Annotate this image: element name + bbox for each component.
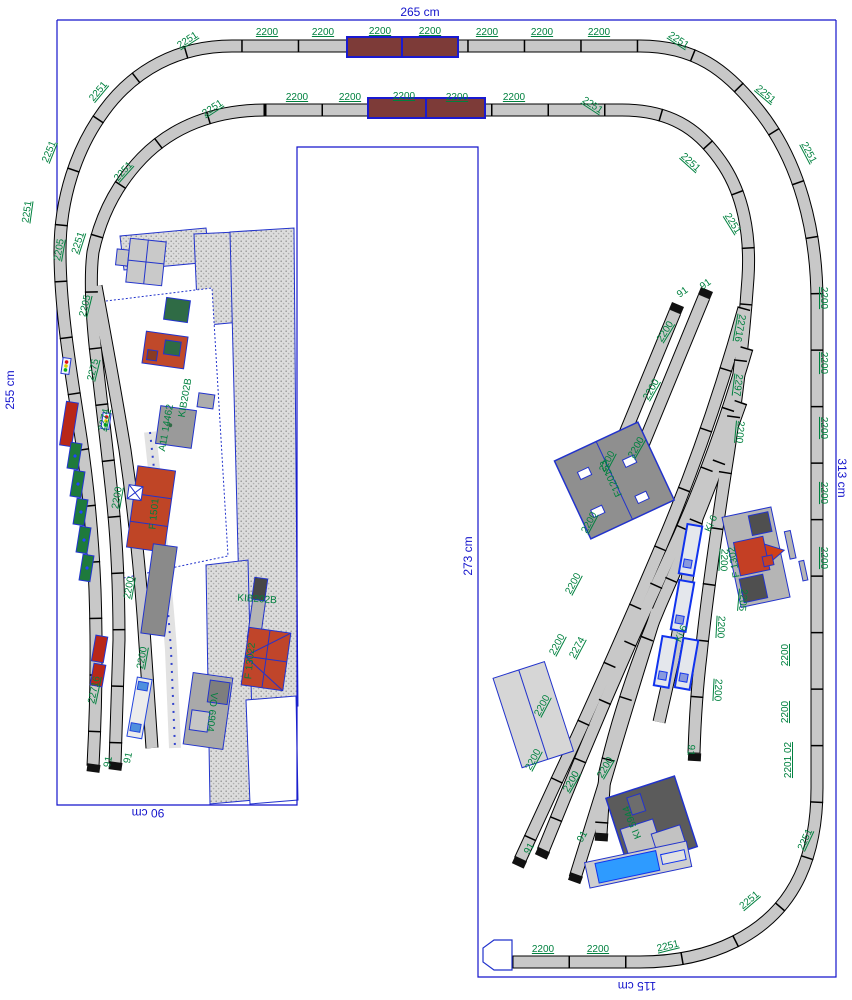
track-plan-canvas: 265 cm 255 cm 313 cm 90 cm 273 cm 115 cm… (0, 0, 852, 1000)
dimension-middle: 273 cm (462, 536, 474, 575)
dimension-top: 265 cm (400, 6, 439, 18)
building-f1302-complex (722, 503, 811, 608)
building-green-roof (164, 297, 191, 322)
building-f120153 (554, 422, 674, 539)
dimension-left: 255 cm (4, 370, 16, 409)
building-f13022 (241, 627, 291, 690)
track-plan-drawing (0, 0, 852, 1000)
dimension-bottom-left: 90 cm (132, 807, 165, 819)
tunnel-portal (483, 940, 512, 970)
platform-right (493, 662, 573, 768)
building-red-house (142, 331, 188, 369)
dimension-bottom: 115 cm (618, 980, 656, 992)
light-signal (61, 358, 71, 375)
light-signal (101, 413, 111, 430)
courtyard-south (246, 696, 298, 804)
dimension-right: 313 cm (836, 458, 848, 497)
